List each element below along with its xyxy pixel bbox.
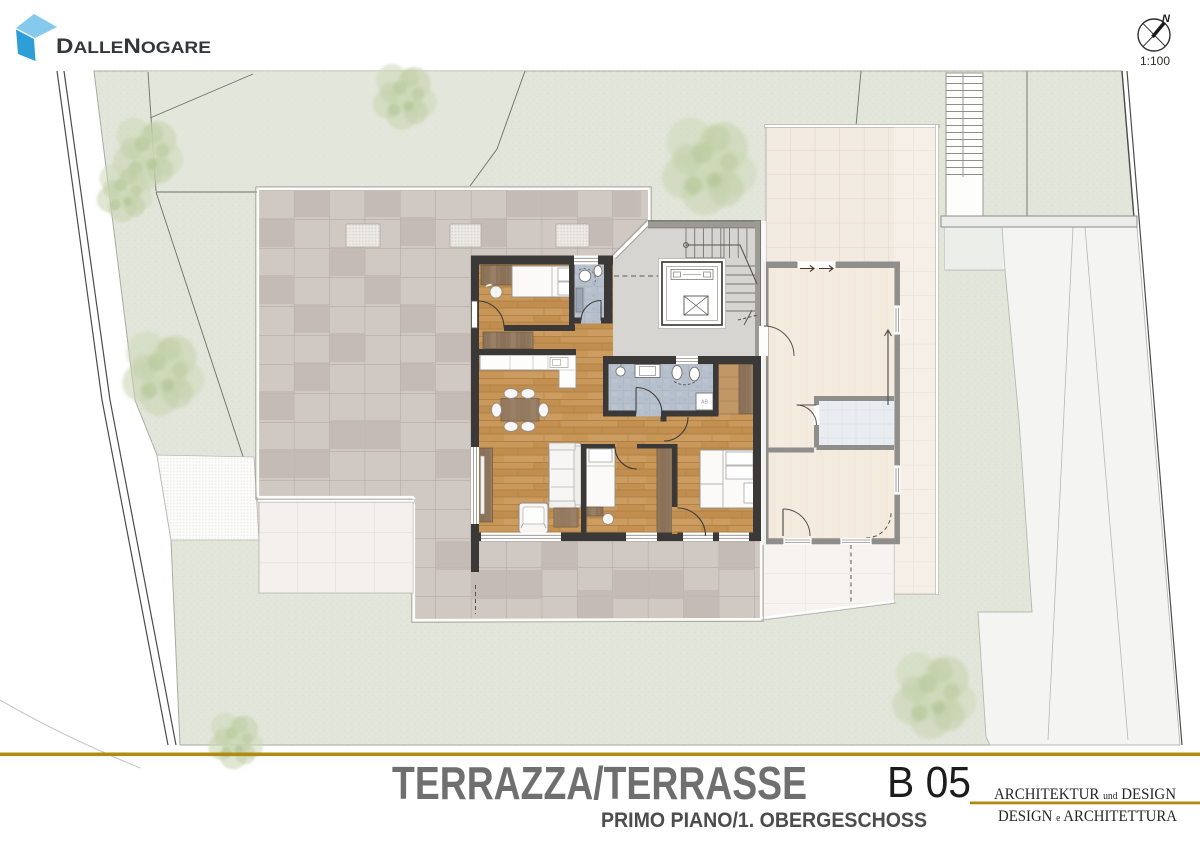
svg-text:B 05: B 05 [887, 758, 971, 807]
svg-text:TERRAZZA/TERRASSE: TERRAZZA/TERRASSE [392, 757, 807, 809]
svg-text:AB: AB [701, 400, 708, 406]
svg-text:1:100: 1:100 [1140, 54, 1170, 68]
svg-text:PRIMO PIANO/1. OBERGESCHOSS: PRIMO PIANO/1. OBERGESCHOSS [601, 809, 927, 832]
svg-text:ARCHITEKTUR und DESIGN: ARCHITEKTUR und DESIGN [994, 786, 1176, 803]
svg-text:DALLENOGARE: DALLENOGARE [56, 34, 211, 58]
svg-text:DESIGN e ARCHITETTURA: DESIGN e ARCHITETTURA [998, 808, 1178, 825]
svg-text:N: N [1162, 13, 1171, 25]
